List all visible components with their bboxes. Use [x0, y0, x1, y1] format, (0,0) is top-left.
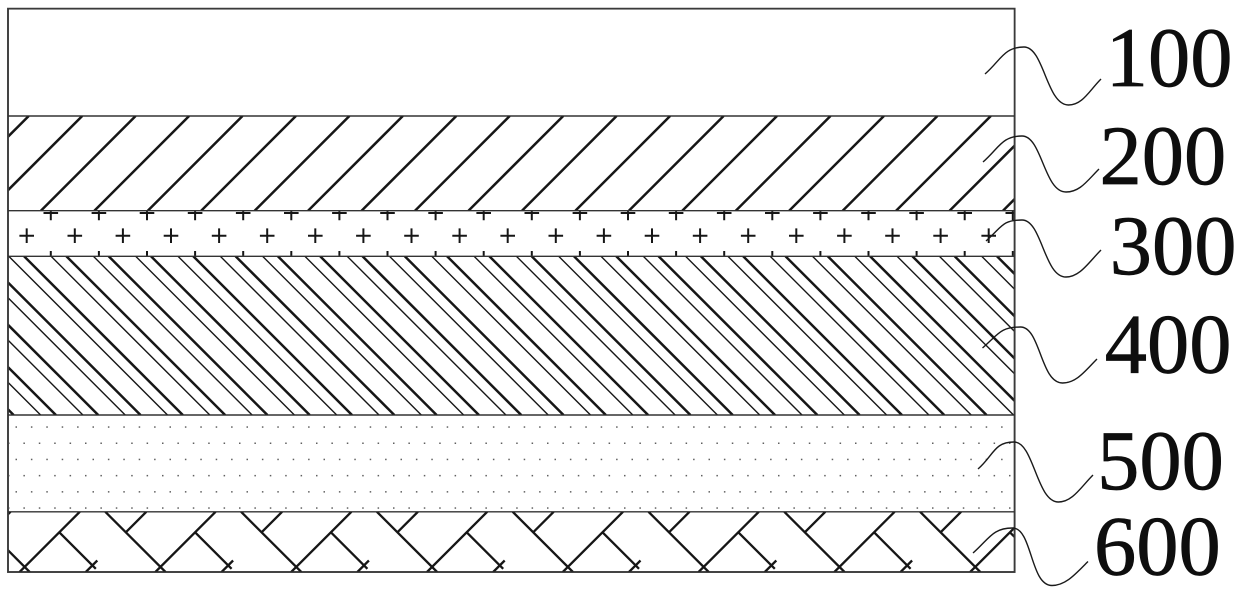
svg-text:600: 600	[1094, 501, 1221, 594]
svg-text:200: 200	[1100, 110, 1227, 203]
svg-text:100: 100	[1106, 12, 1233, 105]
svg-text:400: 400	[1105, 298, 1232, 391]
svg-text:500: 500	[1097, 415, 1224, 508]
svg-text:300: 300	[1110, 200, 1237, 293]
